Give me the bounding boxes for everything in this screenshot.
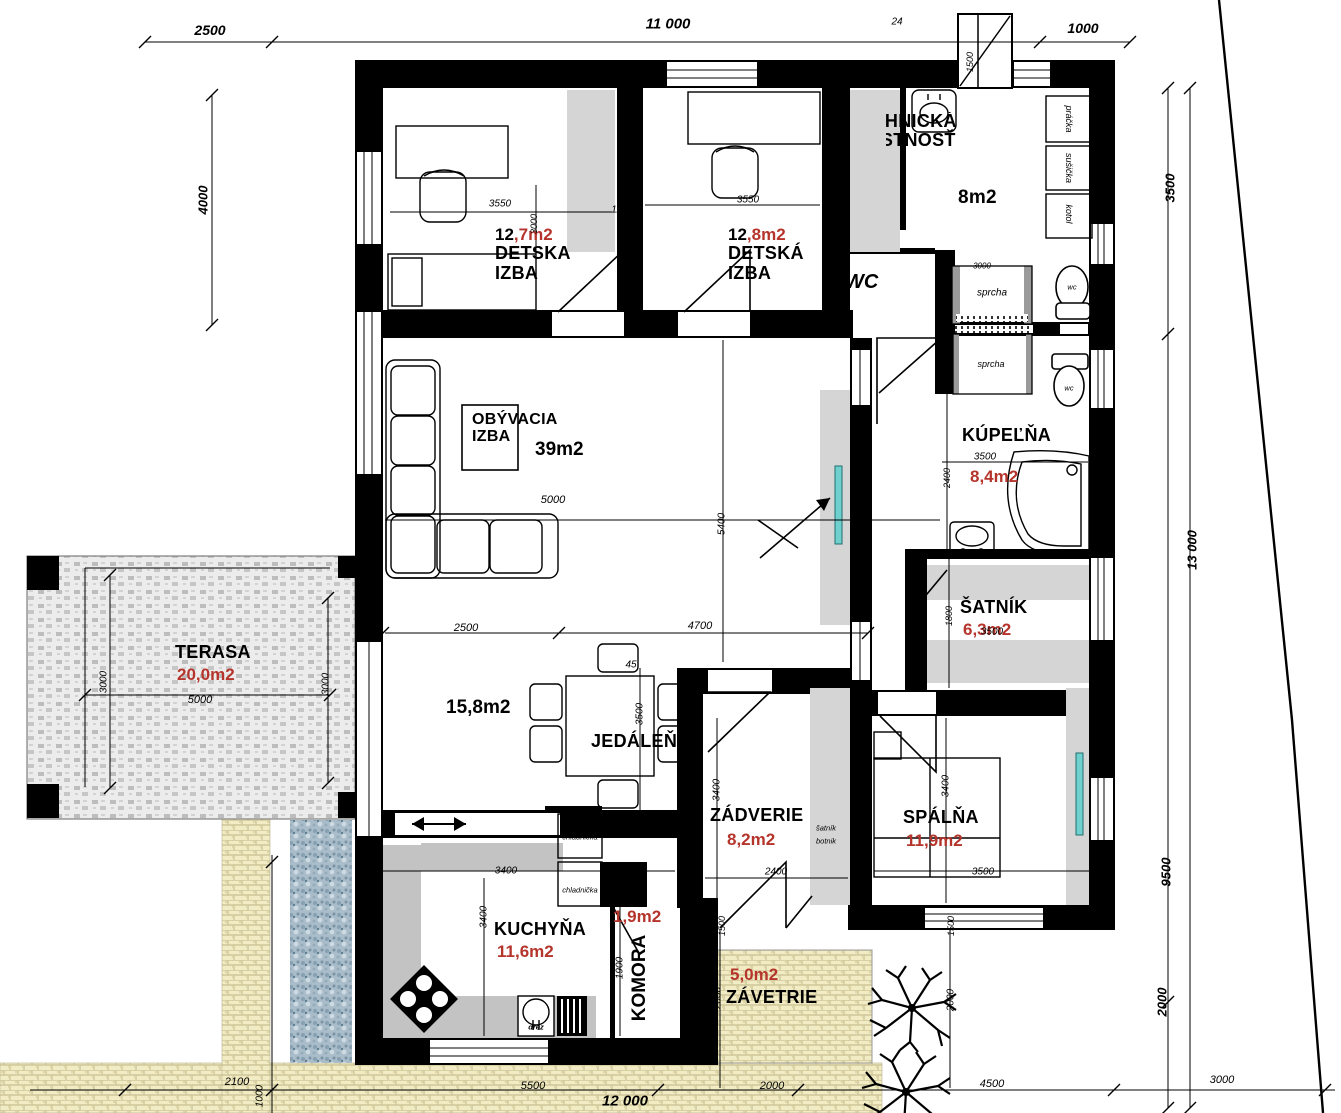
appliance-boxes	[1046, 96, 1092, 238]
desk-detska1	[388, 126, 536, 310]
tree-icon	[868, 966, 956, 1052]
walkway-bottom	[0, 1063, 882, 1113]
sofa	[386, 360, 558, 578]
obyvacia-label-box	[462, 405, 518, 470]
door-detska2	[684, 250, 750, 312]
kitchen-sink	[518, 996, 554, 1036]
tech-sink	[912, 90, 956, 132]
door-spalna	[880, 716, 936, 772]
door-kupelna	[879, 340, 939, 393]
floor-plan-drawing	[0, 0, 1341, 1113]
doors	[558, 250, 947, 955]
property-boundary-line	[1219, 0, 1323, 1113]
door-detska1	[558, 250, 624, 312]
chimney	[958, 14, 1012, 88]
desk-detska2	[688, 92, 820, 198]
zavetrie-pavers	[715, 950, 872, 1063]
bathtub	[1008, 451, 1089, 554]
dining-table	[530, 644, 690, 808]
floor-plan-page: 12,7m2 DETSKA IZBA 12,8m2 DETSKÁ IZBA TE…	[0, 0, 1341, 1113]
furniture	[386, 90, 1092, 1036]
terasa-pavers	[27, 556, 355, 819]
bed-spalna	[874, 732, 1000, 877]
drainer-grill	[557, 996, 587, 1036]
gravel-strip	[290, 820, 352, 1063]
walkway-left	[222, 788, 270, 1113]
hall-arrow-icon	[758, 498, 830, 558]
door-komora	[612, 905, 640, 955]
